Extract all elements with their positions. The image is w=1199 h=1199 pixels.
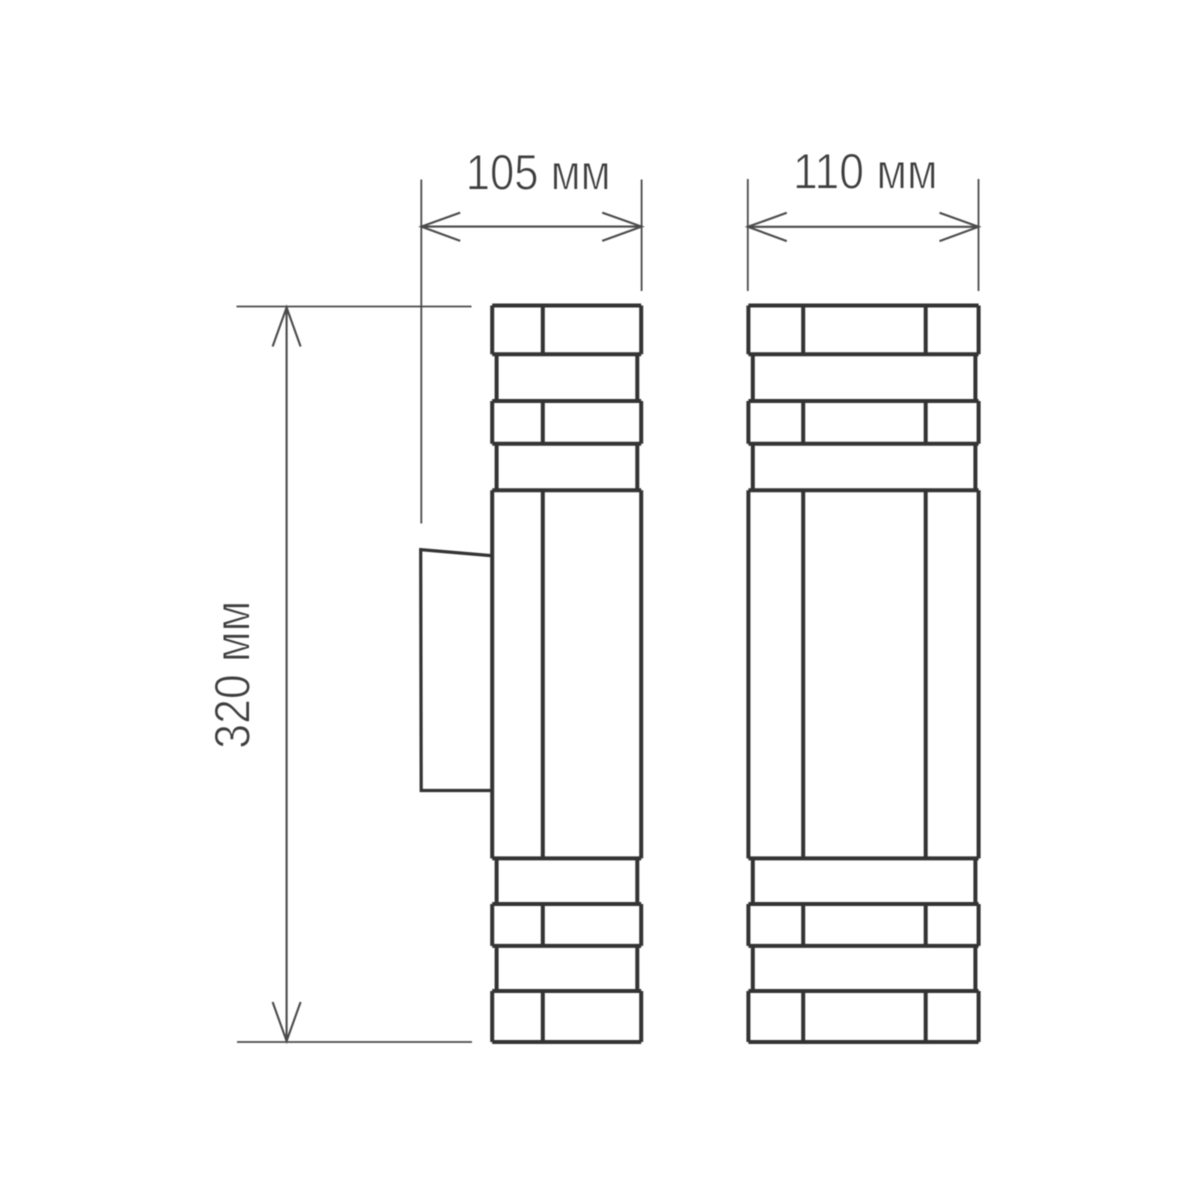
svg-text:110 мм: 110 мм xyxy=(793,144,938,200)
svg-text:320 мм: 320 мм xyxy=(205,601,261,749)
svg-text:105 мм: 105 мм xyxy=(466,145,611,201)
